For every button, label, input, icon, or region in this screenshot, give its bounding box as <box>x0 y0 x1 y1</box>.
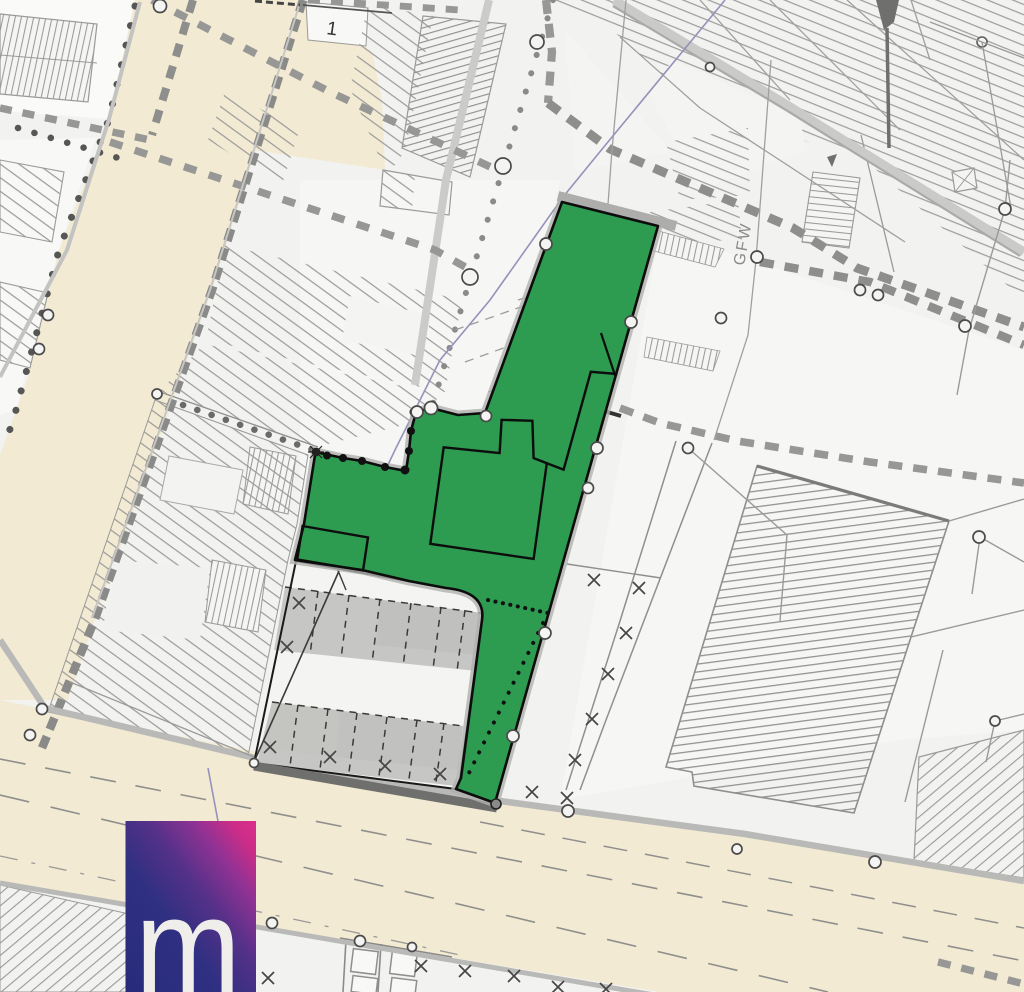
svg-text:m: m <box>135 866 241 992</box>
